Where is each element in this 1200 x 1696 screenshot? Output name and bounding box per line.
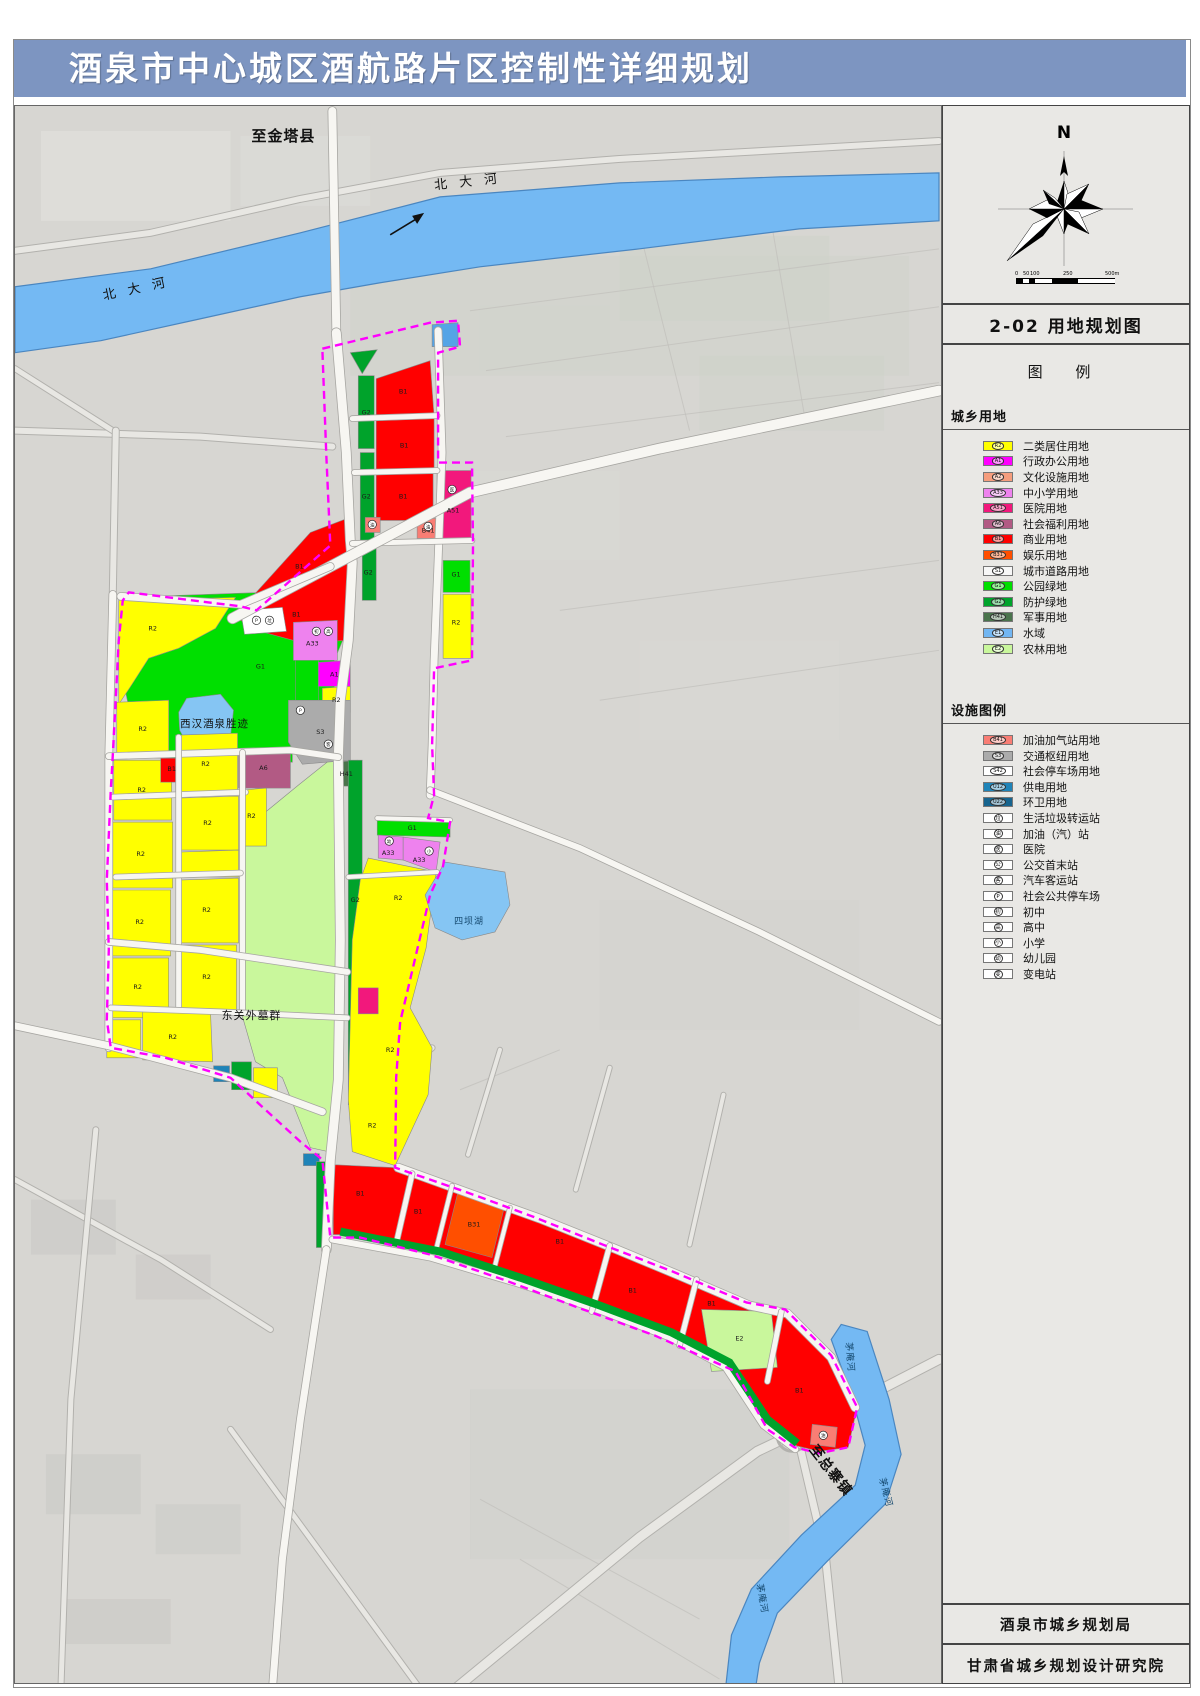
legend-item: B1商业用地 — [943, 532, 1189, 548]
小学-icon: 小 — [994, 938, 1003, 947]
legend-swatch: E1 — [983, 628, 1013, 638]
scale-tick: 500m — [1105, 271, 1119, 277]
legend-item: 客汽车客运站 — [943, 873, 1189, 889]
legend-swatch: S3 — [983, 751, 1013, 761]
facility-icon-glyph: 客 — [326, 741, 331, 748]
legend-item: 初初中 — [943, 904, 1189, 920]
parcel-code: B1 — [414, 1208, 423, 1216]
legend-title: 图 例 — [943, 345, 1189, 396]
legend-item: A51医院用地 — [943, 500, 1189, 516]
legend-swatch: H41 — [983, 612, 1013, 622]
高中-icon: 高 — [994, 923, 1003, 932]
legend-icon-box: 小 — [983, 938, 1013, 948]
parcel-code: G1 — [256, 662, 265, 670]
变电站-icon: 变 — [994, 970, 1003, 979]
legend-label: 军事用地 — [1023, 609, 1067, 625]
facility-icon-glyph: 小 — [427, 848, 432, 855]
facility-icon-glyph: 油 — [426, 523, 431, 530]
landuse-code: S42 — [990, 767, 1006, 775]
legend-icon-box: 幼 — [983, 953, 1013, 963]
legend-label: 防护绿地 — [1023, 594, 1067, 610]
parcel-code: G1 — [451, 570, 460, 578]
parcel-code: R2 — [168, 1033, 177, 1041]
landuse-code: E1 — [992, 629, 1004, 637]
base-road — [113, 431, 116, 595]
landuse-code: B31 — [990, 551, 1006, 559]
parcel-code: R2 — [332, 696, 341, 704]
parcel-code: A33 — [382, 849, 395, 857]
legend-label: 娱乐用地 — [1023, 547, 1067, 563]
map-label: 四坝湖 — [454, 916, 484, 927]
legend-label: 供电用地 — [1023, 779, 1067, 795]
map-canvas: G2B1B1B1G2G2A51B41B1B1A33A1R2S3A6H41G1R2… — [15, 106, 941, 1683]
legend-icon-box: 变 — [983, 969, 1013, 979]
landuse-code: E2 — [992, 645, 1004, 653]
parcel-code: R2 — [202, 906, 211, 914]
planning-road — [332, 111, 336, 331]
legend-label: 高中 — [1023, 919, 1045, 935]
legend-panel: N 050100250500m 2-02 用地规划图 图 例 城乡用地 R2二类… — [942, 105, 1190, 1684]
legend-item: E1水域 — [943, 625, 1189, 641]
landuse-code: A33 — [990, 489, 1006, 497]
parcel-code: E2 — [735, 1334, 743, 1342]
parcel-code: B1 — [707, 1299, 716, 1307]
legend-label: 生活垃圾转运站 — [1023, 810, 1100, 826]
医院-icon: 医 — [994, 845, 1003, 854]
legend-icon-box: P — [983, 891, 1013, 901]
terrain-patch — [136, 1255, 211, 1300]
legend-icon-box: 医 — [983, 844, 1013, 854]
legend-item: P社会公共停车场 — [943, 888, 1189, 904]
legend-item: R2二类居住用地 — [943, 438, 1189, 454]
legend-icon-box: 垃 — [983, 813, 1013, 823]
加油（汽）站-icon: 油 — [994, 829, 1003, 838]
parcel-code: R2 — [202, 973, 211, 981]
legend-label: 医院 — [1023, 841, 1045, 857]
parcel-code: B1 — [356, 1190, 365, 1198]
legend-section-urban-heading: 城乡用地 — [943, 396, 1189, 430]
legend-item: S42社会停车场用地 — [943, 764, 1189, 780]
legend-item: U22环卫用地 — [943, 795, 1189, 811]
legend-label: 加油加气站用地 — [1023, 732, 1100, 748]
parcel-code: G2 — [351, 896, 360, 904]
legend-label: 幼儿园 — [1023, 950, 1056, 966]
legend-item: 幼幼儿园 — [943, 951, 1189, 967]
page: { "title": "酒泉市中心城区酒航路片区控制性详细规划", "panel… — [0, 0, 1200, 1696]
legend-icon-box: 高 — [983, 922, 1013, 932]
legend-label: 城市道路用地 — [1023, 563, 1089, 579]
legend-swatch: S42 — [983, 766, 1013, 776]
map-label: 东关外墓群 — [222, 1008, 282, 1022]
scale-tick: 100 — [1030, 271, 1040, 277]
map-sheet-title: 2-02 用地规划图 — [943, 305, 1189, 345]
parcel-code: R2 — [247, 812, 256, 820]
parcel-code: A51 — [447, 506, 460, 514]
legend-swatch: R2 — [983, 441, 1013, 451]
page-title: 酒泉市中心城区酒航路片区控制性详细规划 — [14, 40, 1186, 97]
parcel-code: R2 — [137, 786, 146, 794]
公交首末站-icon: 公 — [994, 860, 1003, 869]
parcel-code: G1 — [408, 824, 417, 832]
parcel-code: R2 — [394, 894, 403, 902]
planning-map: G2B1B1B1G2G2A51B41B1B1A33A1R2S3A6H41G1R2… — [14, 105, 942, 1684]
legend-item: A33中小学用地 — [943, 485, 1189, 501]
legend-item: 公公交首末站 — [943, 857, 1189, 873]
legend-swatch: A2 — [983, 472, 1013, 482]
legend-swatch: A33 — [983, 488, 1013, 498]
legend-item: H41军事用地 — [943, 610, 1189, 626]
landuse-code: A2 — [992, 473, 1005, 481]
facility-icon-glyph: P — [299, 708, 302, 714]
landuse-code: H41 — [990, 613, 1006, 621]
landuse-code: U22 — [990, 798, 1006, 806]
初中-icon: 初 — [994, 907, 1003, 916]
legend-item: A2文化设施用地 — [943, 469, 1189, 485]
parcel-code: B1 — [399, 388, 408, 396]
legend-section-urban: R2二类居住用地A1行政办公用地A2文化设施用地A33中小学用地A51医院用地A… — [943, 438, 1189, 656]
map-label: 西汉酒泉胜迹 — [180, 717, 249, 730]
legend-item: 医医院 — [943, 841, 1189, 857]
legend-label: 水域 — [1023, 625, 1045, 641]
parcel-code: R2 — [452, 618, 461, 626]
parcel-code: R2 — [133, 983, 142, 991]
汽车客运站-icon: 客 — [994, 876, 1003, 885]
legend-label: 加油（汽）站 — [1023, 826, 1089, 842]
parcel-code: G2 — [362, 409, 371, 417]
parcel-code: B1 — [295, 562, 304, 570]
legend-swatch: A1 — [983, 456, 1013, 466]
legend-label: 环卫用地 — [1023, 794, 1067, 810]
landuse-code: B41 — [990, 736, 1006, 744]
legend-icon-box: 客 — [983, 875, 1013, 885]
parcel-code: R2 — [386, 1046, 395, 1054]
legend-swatch: G1 — [983, 581, 1013, 591]
landuse-code: R2 — [992, 442, 1005, 450]
landuse-code: A6 — [992, 520, 1005, 528]
parcel-code: G2 — [362, 492, 371, 500]
legend-item: 垃生活垃圾转运站 — [943, 810, 1189, 826]
legend-section-facility: B41加油加气站用地S3交通枢纽用地S42社会停车场用地U12供电用地U22环卫… — [943, 732, 1189, 982]
facility-icon-glyph: 垃 — [267, 617, 272, 624]
legend-item: 小小学 — [943, 935, 1189, 951]
legend-label: 小学 — [1023, 935, 1045, 951]
parcel-code: R2 — [203, 819, 212, 827]
legend-label: 农林用地 — [1023, 641, 1067, 657]
terrain-patch — [46, 1454, 141, 1514]
parcel-code: B1 — [795, 1386, 804, 1394]
scale-tick: 0 — [1015, 271, 1018, 277]
parcel-code: B1 — [556, 1238, 565, 1246]
legend-label: 商业用地 — [1023, 531, 1067, 547]
parcel-code: A6 — [259, 764, 268, 772]
legend-label: 变电站 — [1023, 966, 1056, 982]
planning-road — [354, 471, 437, 473]
facility-icon-glyph: 油 — [821, 1432, 826, 1439]
landuse-code: S1 — [992, 567, 1004, 575]
parcel-code: A1 — [330, 670, 339, 678]
legend-swatch: A51 — [983, 503, 1013, 513]
facility-icon-glyph: 医 — [450, 487, 455, 493]
legend-label: 行政办公用地 — [1023, 453, 1089, 469]
facility-icon-glyph: 幼 — [387, 838, 392, 845]
terrain-patch — [156, 1504, 241, 1554]
terrain-patch — [480, 306, 610, 371]
north-label-n: N — [1057, 123, 1071, 143]
legend-block: 图 例 城乡用地 R2二类居住用地A1行政办公用地A2文化设施用地A33中小学用… — [943, 345, 1189, 1605]
compass-block: N 050100250500m — [943, 106, 1189, 305]
legend-item: A1行政办公用地 — [943, 454, 1189, 470]
landuse-code: A1 — [992, 457, 1005, 465]
landuse-code: S3 — [992, 752, 1004, 760]
parcel-code: R2 — [148, 624, 157, 632]
legend-item: G1公园绿地 — [943, 578, 1189, 594]
legend-item: U12供电用地 — [943, 779, 1189, 795]
scale-bar: 050100250500m — [1016, 278, 1115, 284]
legend-item: B41加油加气站用地 — [943, 732, 1189, 748]
legend-swatch: B1 — [983, 534, 1013, 544]
parcel-code: R2 — [136, 850, 145, 858]
legend-section-facility-heading: 设施图例 — [943, 690, 1189, 724]
design-institute-name: 甘肃省城乡规划设计研究院 — [943, 1645, 1189, 1686]
facility-icon-glyph: P — [255, 618, 258, 624]
agency-name: 酒泉市城乡规划局 — [943, 1605, 1189, 1645]
legend-item: B31娱乐用地 — [943, 547, 1189, 563]
legend-label: 中小学用地 — [1023, 485, 1078, 501]
legend-swatch: U22 — [983, 797, 1013, 807]
scale-tick: 250 — [1063, 271, 1073, 277]
legend-icon-box: 初 — [983, 907, 1013, 917]
幼儿园-icon: 幼 — [994, 954, 1003, 963]
terrain-patch — [41, 131, 231, 221]
parcel-code: A33 — [306, 639, 319, 647]
parcel-code: H41 — [340, 770, 353, 778]
parcel-code: B1 — [399, 492, 408, 500]
legend-item: G2防护绿地 — [943, 594, 1189, 610]
legend-label: 二类居住用地 — [1023, 438, 1089, 454]
parcel-code: S3 — [316, 728, 324, 736]
scale-tick: 50 — [1023, 271, 1029, 277]
landuse-code: G1 — [991, 582, 1004, 590]
legend-item: S3交通枢纽用地 — [943, 748, 1189, 764]
parcel-code: R2 — [135, 918, 144, 926]
legend-label: 文化设施用地 — [1023, 469, 1089, 485]
parcel-code: A33 — [413, 856, 426, 864]
facility-icon-glyph: 高 — [326, 628, 331, 635]
legend-swatch: U12 — [983, 782, 1013, 792]
legend-icon-box: 油 — [983, 829, 1013, 839]
legend-item: E2农林用地 — [943, 641, 1189, 657]
parcel-code: R2 — [201, 760, 210, 768]
landuse-code: G2 — [991, 598, 1004, 606]
legend-swatch: B41 — [983, 735, 1013, 745]
legend-label: 社会停车场用地 — [1023, 763, 1100, 779]
landuse-code: U12 — [990, 783, 1006, 791]
legend-label: 交通枢纽用地 — [1023, 748, 1089, 764]
facility-icon-glyph: 初 — [314, 628, 319, 635]
parcel-code: B1 — [167, 765, 176, 773]
parcel-code: B1 — [292, 610, 301, 618]
landuse-parcel — [358, 988, 378, 1014]
legend-label: 汽车客运站 — [1023, 872, 1078, 888]
map-label: 至金塔县 — [251, 127, 315, 145]
parcel-code: G2 — [364, 568, 373, 576]
legend-item: 变变电站 — [943, 966, 1189, 982]
生活垃圾转运站-icon: 垃 — [994, 814, 1003, 823]
parcel-code: R2 — [138, 725, 147, 733]
legend-swatch: E2 — [983, 644, 1013, 654]
parcel-code: B31 — [468, 1221, 481, 1229]
legend-item: A6社会福利用地 — [943, 516, 1189, 532]
社会公共停车场-icon: P — [994, 892, 1003, 901]
facility-icon-glyph: 油 — [370, 521, 375, 528]
legend-swatch: B31 — [983, 550, 1013, 560]
legend-icon-box: 公 — [983, 860, 1013, 870]
terrain-patch — [61, 1599, 171, 1644]
legend-swatch: G2 — [983, 597, 1013, 607]
landuse-code: A51 — [990, 504, 1006, 512]
legend-label: 社会福利用地 — [1023, 516, 1089, 532]
legend-label: 公交首末站 — [1023, 857, 1078, 873]
legend-item: 油加油（汽）站 — [943, 826, 1189, 842]
legend-swatch: A6 — [983, 519, 1013, 529]
terrain-patch — [470, 1389, 789, 1559]
parcel-code: R2 — [368, 1122, 377, 1130]
parcel-code: B1 — [400, 442, 409, 450]
legend-label: 初中 — [1023, 904, 1045, 920]
landuse-code: B1 — [992, 535, 1005, 543]
legend-label: 医院用地 — [1023, 500, 1067, 516]
legend-label: 社会公共停车场 — [1023, 888, 1100, 904]
legend-item: 高高中 — [943, 919, 1189, 935]
legend-item: S1城市道路用地 — [943, 563, 1189, 579]
legend-swatch: S1 — [983, 566, 1013, 576]
legend-label: 公园绿地 — [1023, 578, 1067, 594]
parcel-code: B1 — [628, 1286, 637, 1294]
